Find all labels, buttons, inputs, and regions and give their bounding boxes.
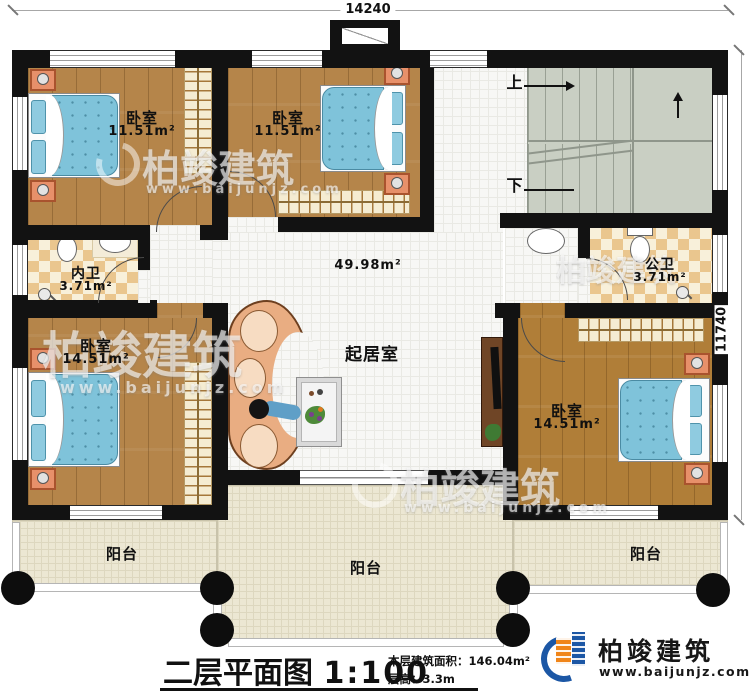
wall-bedroom-divider (212, 50, 228, 240)
nightstand-knob (691, 467, 703, 479)
sofa-cushion (240, 424, 278, 468)
room-area-bedroom: 14.51m² (533, 417, 600, 432)
floor-area-info: 本层建筑面积：146.04m² (388, 653, 530, 669)
balcony-railing (30, 583, 206, 592)
nightstand-knob (37, 352, 49, 364)
floor-area-label: 本层建筑面积： (388, 654, 469, 668)
title-underline (160, 688, 478, 691)
window (70, 505, 162, 520)
brand-website: www.baijunjz.com (599, 664, 750, 679)
nightstand-knob (37, 472, 49, 484)
nightstand (30, 180, 56, 202)
bed-pillow (31, 380, 46, 417)
nightstand (684, 463, 710, 485)
door-opening (228, 217, 278, 232)
nightstand-knob (391, 67, 403, 79)
nightstand (684, 353, 710, 375)
nightstand (30, 468, 56, 490)
sliding-door (300, 470, 428, 485)
floor-height-value: 3.3m (423, 672, 455, 686)
plan-title-text: 二层平面图 (163, 656, 313, 691)
stairs-direction-arrow (677, 100, 679, 118)
floor-area-value: 146.04m² (469, 654, 530, 668)
room-label-living: 起居室 (345, 340, 399, 365)
balcony-column (496, 571, 530, 605)
window (712, 95, 728, 190)
wall-bedroom4-left (503, 318, 518, 520)
sofa-cushion (240, 310, 278, 352)
bed-pillow (688, 385, 702, 417)
brand-logo-building-icon (556, 638, 571, 664)
window (12, 245, 28, 295)
stair-landing-line (632, 62, 634, 213)
wall-stairs-bottom (500, 213, 712, 228)
right-dimension-line (741, 50, 742, 520)
stair-treads-lower (528, 144, 632, 213)
room-area-bedroom: 11.51m² (108, 124, 175, 139)
window (252, 50, 322, 68)
wardrobe (578, 318, 704, 342)
balcony-column (696, 573, 730, 607)
toilet-tank (627, 227, 653, 236)
floor-hallway (150, 240, 212, 303)
room-area-bedroom: 11.51m² (254, 124, 321, 139)
bed-pillow (31, 100, 46, 134)
wardrobe (184, 362, 212, 505)
table-decor (317, 389, 323, 395)
stairs-up-arrow (524, 85, 568, 87)
stairs-down-arrow (524, 189, 574, 191)
nightstand-knob (37, 73, 49, 85)
nightstand-knob (691, 357, 703, 369)
window (12, 97, 28, 170)
wall-bedroom2-right (420, 50, 434, 232)
table-decor (309, 391, 314, 396)
wall-bedroom4-top (495, 303, 520, 318)
bed-pillow (31, 140, 46, 174)
window (712, 385, 728, 462)
sink (527, 228, 565, 254)
table-flower (317, 416, 322, 421)
floor-height-info: 层高：3.3m (388, 671, 455, 687)
window (430, 50, 487, 68)
wall-public-bath-divider (578, 228, 590, 258)
bed-pillow (688, 423, 702, 455)
window (12, 368, 28, 460)
wall-living-bottom (428, 470, 512, 485)
table-flower (318, 407, 323, 412)
nightstand (384, 173, 410, 195)
balcony-column (496, 613, 530, 647)
table-flower (309, 412, 314, 417)
stairs-up-arrowhead (566, 81, 575, 91)
person-head (249, 399, 269, 419)
balcony-railing (228, 638, 504, 647)
stairs-direction-arrowhead (673, 92, 683, 101)
brand-name: 柏竣建筑 (598, 632, 714, 668)
door-opening (157, 303, 203, 318)
door-opening (520, 303, 565, 318)
window (570, 505, 658, 520)
window (50, 50, 175, 68)
right-dimension-label: 11740 (715, 305, 730, 354)
wall-bedroom2-bottom (278, 217, 434, 232)
dimension-tick (733, 514, 744, 525)
top-dimension-label: 14240 (340, 2, 395, 17)
nightstand-knob (37, 184, 49, 196)
room-label-balcony: 阳台 (350, 557, 382, 578)
chimney-inner (342, 28, 388, 44)
balcony-column (1, 571, 35, 605)
wall-bedroom4-top (565, 303, 712, 318)
balcony-column (200, 571, 234, 605)
wall-bedroom1-bottom (28, 225, 150, 240)
bed-pillow (31, 424, 46, 461)
dimension-tick (733, 44, 744, 55)
floor-height-label: 层高： (388, 672, 423, 686)
window (712, 235, 728, 292)
sofa-cushion (234, 358, 266, 398)
balcony-column (200, 613, 234, 647)
room-label-balcony: 阳台 (106, 543, 138, 564)
nightstand (30, 348, 56, 370)
wall-bedroom3-right (212, 303, 228, 520)
floor-living-room (434, 214, 503, 232)
shower-head (676, 286, 689, 299)
stairs-down-label: 下 (506, 172, 523, 196)
nightstand (30, 69, 56, 91)
floor-balcony-right (513, 520, 728, 590)
stair-treads-upper (528, 62, 632, 140)
room-area-public-bath: 3.71m² (633, 270, 686, 284)
balcony-railing (528, 585, 702, 594)
stairs-up-label: 上 (506, 69, 523, 93)
room-area-living: 49.98m² (334, 258, 401, 273)
wardrobe (184, 62, 212, 174)
room-area-inner-bath: 3.71m² (59, 279, 112, 293)
nightstand-knob (391, 177, 403, 189)
floorplan-canvas: 14240 11740 上 下 (0, 0, 750, 694)
brand-logo-building-icon (572, 632, 585, 666)
room-label-balcony: 阳台 (630, 543, 662, 564)
room-area-bedroom: 14.51m² (62, 352, 129, 367)
